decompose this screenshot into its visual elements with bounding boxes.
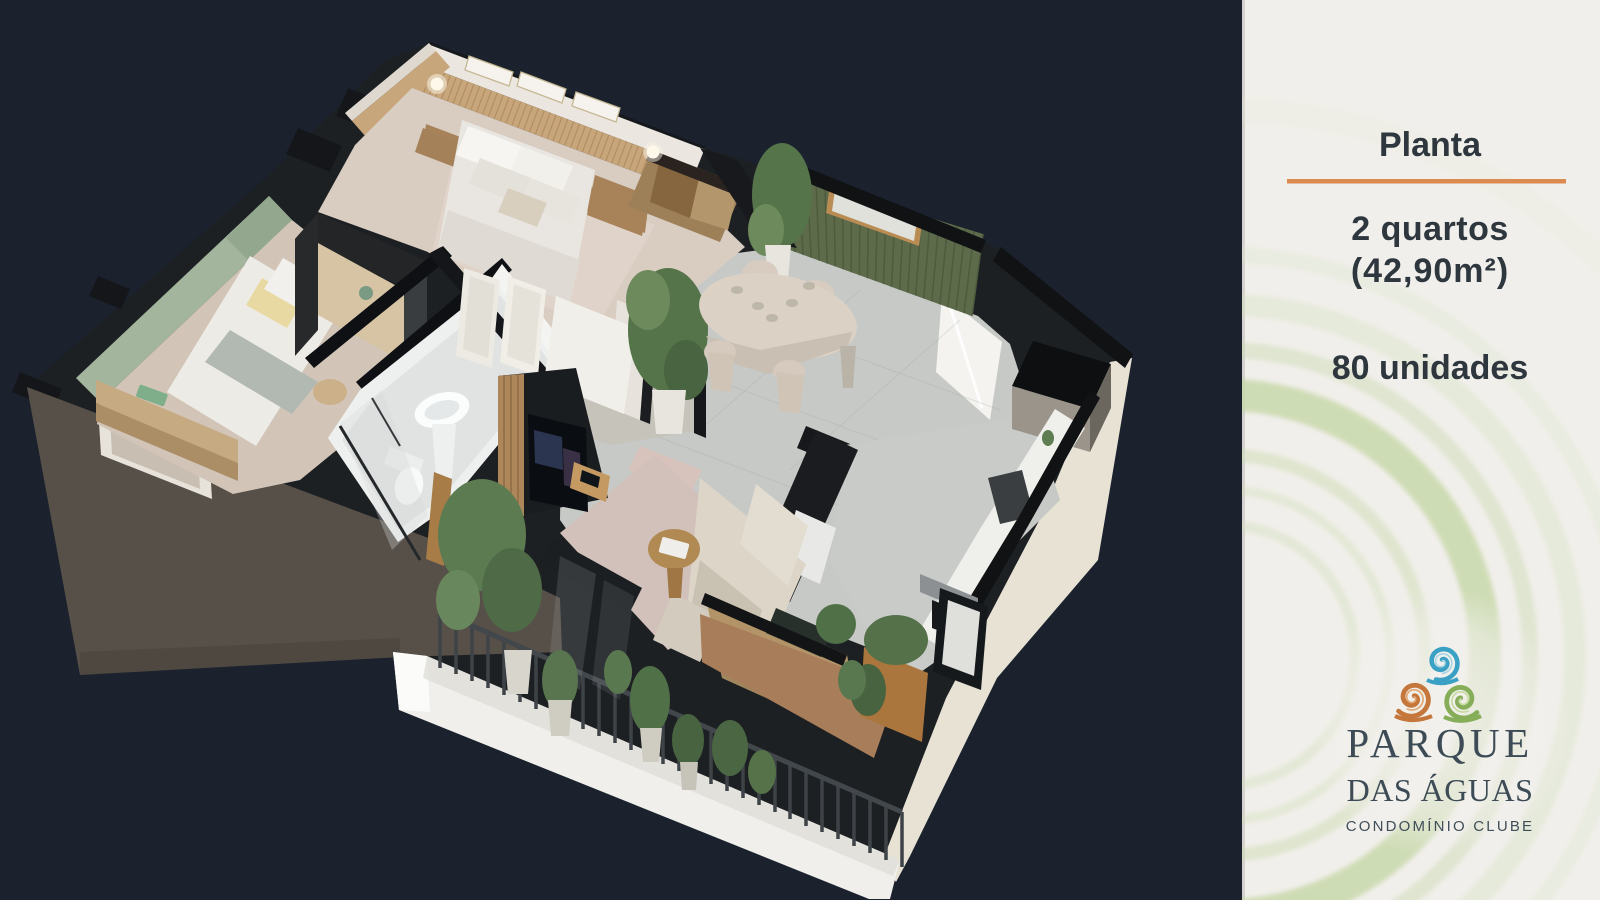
svg-text:CONDOMÍNIO CLUBE: CONDOMÍNIO CLUBE (1346, 818, 1535, 835)
svg-text:2 quartos: 2 quartos (1351, 210, 1509, 248)
svg-text:80 unidades: 80 unidades (1332, 349, 1529, 387)
svg-text:Planta: Planta (1379, 126, 1482, 164)
svg-text:(42,90m²): (42,90m²) (1351, 252, 1509, 290)
svg-text:DAS ÁGUAS: DAS ÁGUAS (1347, 772, 1534, 808)
svg-text:PARQUE: PARQUE (1346, 720, 1533, 766)
